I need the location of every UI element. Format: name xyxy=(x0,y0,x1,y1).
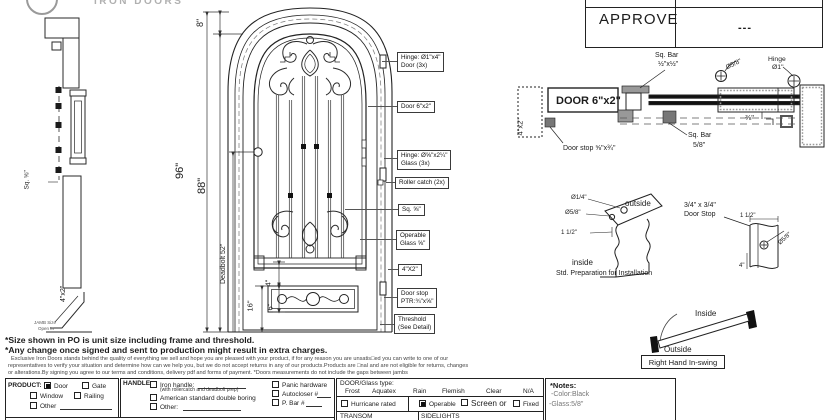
glass-section-divider xyxy=(408,396,409,411)
operable-label: Operable xyxy=(429,401,456,408)
glass-type-na: N/A xyxy=(523,388,534,395)
glass-section-divider xyxy=(336,411,544,412)
screen-label: Screen or xyxy=(471,399,507,408)
callout-4x2: 4"X2" xyxy=(398,264,422,276)
stop-dim4-label: 4" xyxy=(739,263,744,270)
section-frame-label: 4"x2" xyxy=(60,286,67,302)
plan-sqbar-top-size: ½"x½" xyxy=(658,61,678,69)
callout-text: PTR:¾"x⅝" xyxy=(401,298,433,306)
checkbox-product-gate[interactable] xyxy=(82,382,89,389)
p-bar-blank[interactable] xyxy=(306,406,322,407)
open-in-note: Open In xyxy=(38,326,54,331)
prep-outside-label: outside xyxy=(625,199,651,208)
plan-jamb-label: 4"x2" xyxy=(517,118,525,135)
dim-8in: 8" xyxy=(196,19,205,27)
product-other-blank[interactable] xyxy=(60,409,112,410)
prep-inside-label: inside xyxy=(572,258,593,267)
checkbox-autocloser[interactable] xyxy=(272,390,279,397)
glass-type-rain: Rain xyxy=(413,388,426,395)
callout-sq-bar: Sq. ⅝" xyxy=(398,204,425,216)
notes-color-value: -Color:Black xyxy=(551,391,589,399)
prep-dia14-label: Ø1/4" xyxy=(571,194,587,201)
jamb-size-note: JAMB Size xyxy=(34,320,56,325)
product-railing-label: Railing xyxy=(84,393,104,400)
handle-other-label: Other: xyxy=(160,404,178,411)
table-line xyxy=(585,7,823,8)
change-note: *Any change once signed and sent to prod… xyxy=(5,346,327,356)
checkbox-panic-hardware[interactable] xyxy=(272,381,279,388)
glass-section-divider xyxy=(418,411,419,420)
glass-section-divider xyxy=(336,396,544,397)
handle-label: HANDLE: xyxy=(123,380,152,387)
leader-line xyxy=(384,158,397,159)
dim-6in: 6" xyxy=(267,304,275,311)
checkbox-iron-handle[interactable] xyxy=(150,381,157,388)
dim-16in: 16" xyxy=(247,300,255,311)
callout-text: (See Detail) xyxy=(398,324,431,332)
checkbox-fixed[interactable] xyxy=(513,400,520,407)
checkbox-handle-other[interactable] xyxy=(150,403,157,410)
fine-print-line: or alterations.By signing you agree to o… xyxy=(8,370,408,376)
leader-line xyxy=(388,269,398,270)
callout-operable-glass: Operable Glass ⅝" xyxy=(396,230,430,250)
dim-96in: 96" xyxy=(175,163,186,179)
sidelights-label: SIDELIGHTS xyxy=(421,413,460,420)
callout-text: Operable xyxy=(400,232,426,240)
leader-line xyxy=(360,239,397,240)
checkbox-product-other[interactable] xyxy=(30,402,37,409)
approve-label: APPROVE xyxy=(599,11,679,28)
prep-dim112-label: 1 1/2" xyxy=(561,229,577,236)
autocloser-blank[interactable] xyxy=(317,397,331,398)
checkbox-p-bar[interactable] xyxy=(272,399,279,406)
drawing-sheet: IRON DOORS APPROVE --- xyxy=(0,0,826,420)
checkbox-product-window[interactable] xyxy=(30,392,37,399)
section-sq-bar-label: Sq. ⅝" xyxy=(25,170,32,189)
approve-value: --- xyxy=(738,22,752,35)
checkbox-operable[interactable] xyxy=(419,400,426,407)
handle-other-blank[interactable] xyxy=(183,410,241,411)
fine-print-line: Exclusive Iron Doors stands behind the q… xyxy=(11,356,448,362)
checkbox-american-boring[interactable] xyxy=(150,394,157,401)
callout-hinge-glass: Hinge: Ø⅝"x2¼" Glass (3x) xyxy=(397,150,451,170)
callout-text: Hinge: Ø1"x4" xyxy=(401,54,440,62)
plan-sqbar-top: Sq. Bar xyxy=(655,52,678,60)
leader-line xyxy=(368,106,397,107)
checkbox-screen[interactable] xyxy=(461,399,468,406)
plan-sqbar-bot-size: 5/8" xyxy=(693,142,705,150)
plan-hinge-size: Ø1" xyxy=(772,64,783,72)
american-boring-label: American standard double boring xyxy=(160,395,256,402)
glass-type-aquatex: Aquatex xyxy=(372,388,396,395)
callout-text: Sq. ⅝" xyxy=(402,206,421,214)
callout-text: Glass (3x) xyxy=(401,160,447,168)
callout-text: Hinge: Ø⅝"x2¼" xyxy=(401,152,447,160)
prep-caption: Std. Preparation for Installation xyxy=(556,270,652,278)
hurricane-label: Hurricane rated xyxy=(351,401,396,408)
checkbox-hurricane[interactable] xyxy=(341,400,348,407)
dim-deadbolt: Deadbolt 52" xyxy=(220,244,227,284)
stop-size-label: 3/4" x 3/4" xyxy=(684,202,716,210)
callout-text: 4"X2" xyxy=(402,266,418,274)
plan-sqbar-bot: Sq. Bar xyxy=(688,132,711,140)
leader-line xyxy=(345,209,398,210)
callout-threshold: Threshold (See Detail) xyxy=(394,314,435,334)
leader-line xyxy=(384,297,397,298)
callout-text: Door stop xyxy=(401,290,433,298)
callout-door-stop: Door stop PTR:¾"x⅝" xyxy=(397,288,437,308)
autocloser-label: Autocloser # xyxy=(282,391,318,398)
elevation-drawing xyxy=(195,0,400,340)
callout-text: Threshold xyxy=(398,316,431,324)
plan-dim38: ⅜" xyxy=(745,114,754,123)
callout-text: Door 6"x2" xyxy=(401,103,431,111)
product-label: PRODUCT: xyxy=(8,382,42,389)
callout-text: Roller catch (2x) xyxy=(399,179,445,187)
product-gate-label: Gate xyxy=(92,383,106,390)
callout-text: Door (3x) xyxy=(401,62,440,70)
dim-4in: 4" xyxy=(265,280,273,287)
leader-line xyxy=(380,324,395,325)
plan-door-label: DOOR 6"x2" xyxy=(556,95,621,108)
glass-type-frost: Frost xyxy=(345,388,360,395)
swing-inside-label: Inside xyxy=(695,309,716,318)
notes-title: *Notes: xyxy=(550,382,576,391)
callout-text: Glass ⅝" xyxy=(400,240,426,248)
product-door-label: Door xyxy=(54,383,68,390)
product-other-label: Other xyxy=(40,403,56,410)
fixed-label: Fixed xyxy=(523,401,539,408)
transom-label: TRANSOM xyxy=(340,413,373,420)
plan-hinge-label: Hinge xyxy=(768,56,786,64)
panic-hardware-label: Panic hardware xyxy=(282,382,327,389)
callout-hinge-door: Hinge: Ø1"x4" Door (3x) xyxy=(397,52,444,72)
fine-print-line: representatives to verify your situation… xyxy=(8,363,468,369)
iron-handle-subnote: (with rollercatch and deadbolt prep) xyxy=(160,388,238,394)
checkbox-product-door[interactable] xyxy=(44,382,51,389)
stop-name-label: Door Stop xyxy=(684,211,716,219)
dim-88in: 88" xyxy=(197,178,208,194)
checkbox-product-railing[interactable] xyxy=(74,392,81,399)
glass-type-clear: Clear xyxy=(486,388,502,395)
stop-dim112-label: 1 1/2" xyxy=(740,213,755,220)
swing-outside-label: Outside xyxy=(664,345,692,354)
callout-roller-catch: Roller catch (2x) xyxy=(395,177,449,189)
callout-door-6x2: Door 6"x2" xyxy=(397,101,435,113)
swing-type-badge: Right Hand In-swing xyxy=(641,355,725,369)
p-bar-label: P. Bar # xyxy=(282,400,305,407)
leader-line xyxy=(382,61,397,62)
notes-glass-value: -Glass:5/8" xyxy=(549,401,583,409)
glass-type-label: DOOR/Glass type: xyxy=(340,380,394,387)
product-window-label: Window xyxy=(40,393,63,400)
glass-type-flemish: Flemish xyxy=(442,388,465,395)
prep-dia58-label: Ø5/8" xyxy=(565,209,581,216)
plan-doorstop-label: Door stop ⅝"x¾" xyxy=(563,145,615,153)
